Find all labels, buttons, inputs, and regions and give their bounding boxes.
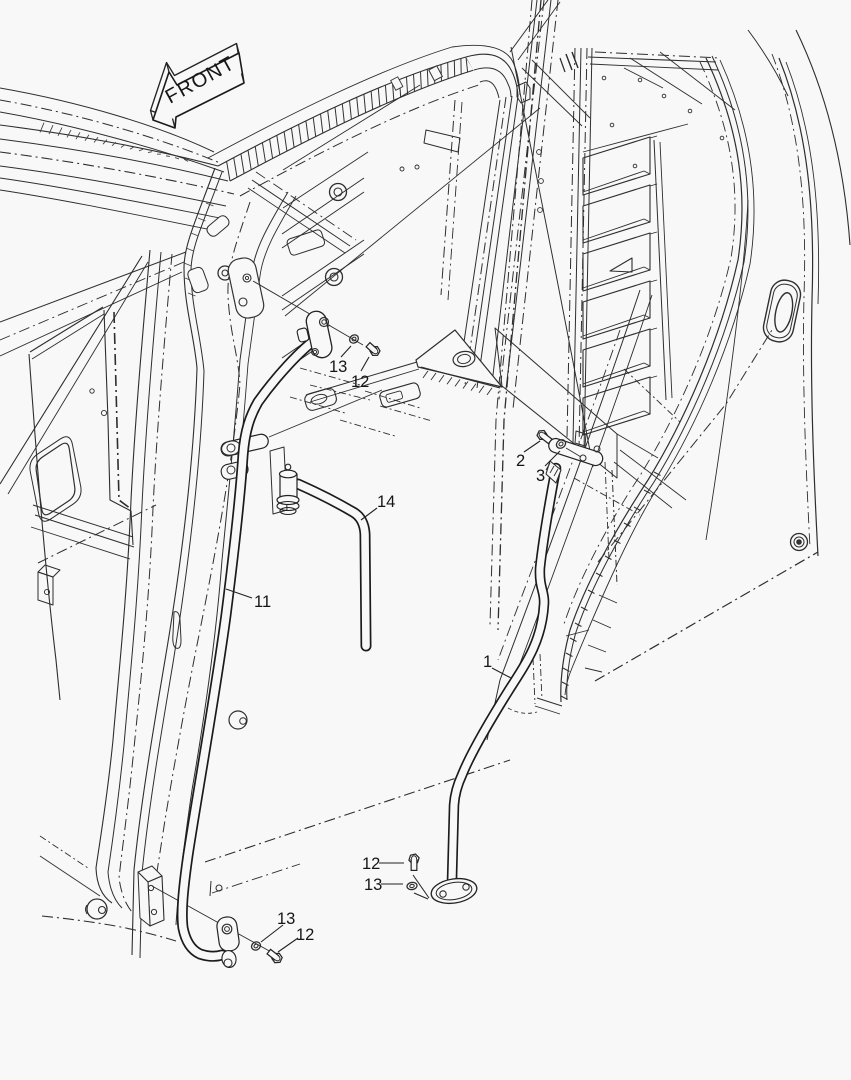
svg-text:1: 1 <box>483 653 492 671</box>
svg-text:12: 12 <box>362 855 380 873</box>
svg-text:3: 3 <box>536 467 545 485</box>
svg-text:14: 14 <box>377 493 395 511</box>
svg-text:2: 2 <box>516 452 525 470</box>
svg-text:12: 12 <box>296 926 314 944</box>
svg-text:11: 11 <box>254 593 271 611</box>
svg-text:12: 12 <box>351 373 369 391</box>
svg-text:13: 13 <box>364 876 382 894</box>
svg-text:13: 13 <box>277 910 295 928</box>
svg-text:13: 13 <box>329 358 347 376</box>
